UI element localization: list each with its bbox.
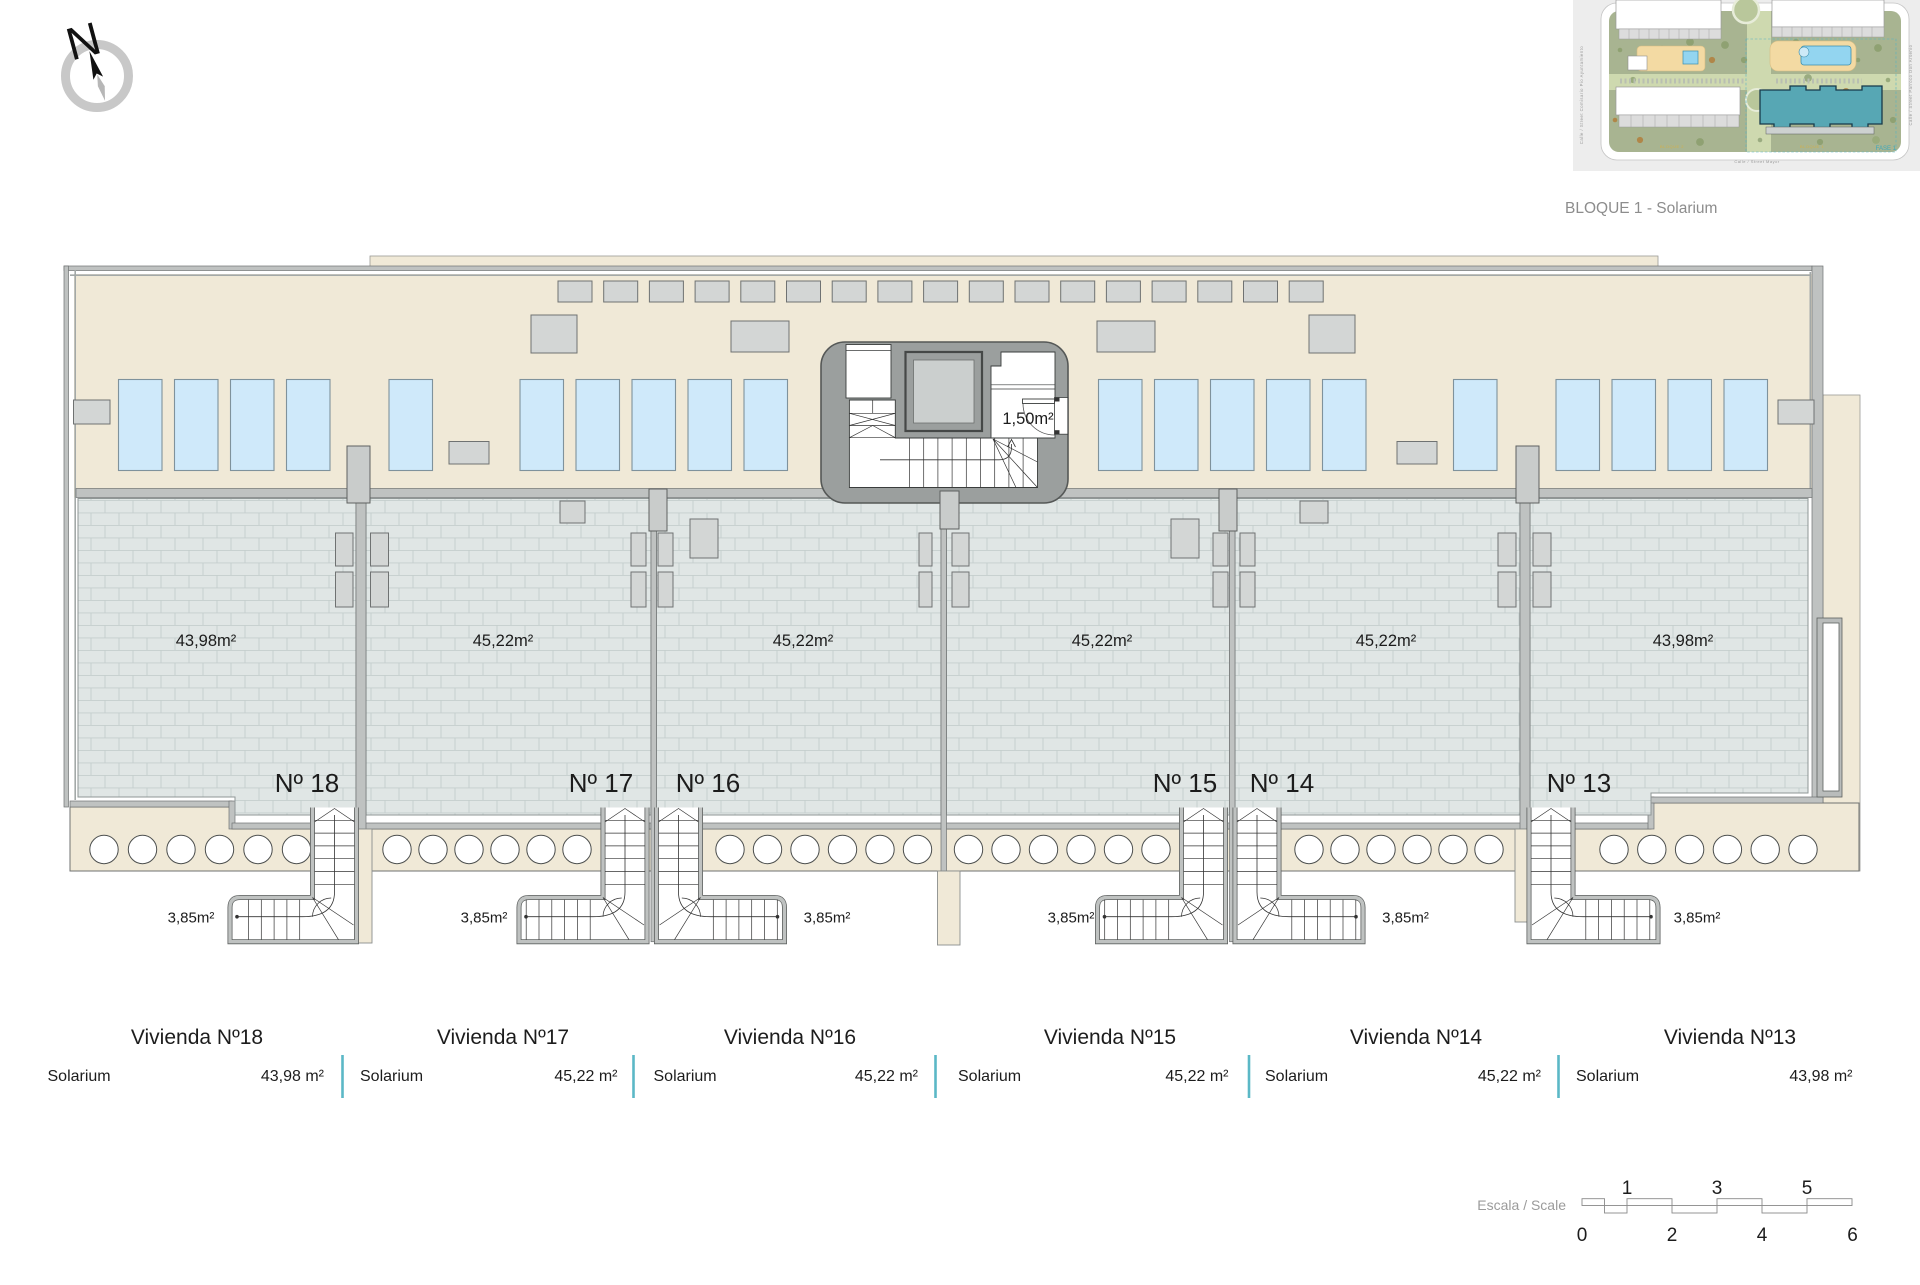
svg-text:BLOQUE 1 - Solarium: BLOQUE 1 - Solarium bbox=[1565, 200, 1717, 217]
svg-text:Nº 16: Nº 16 bbox=[676, 768, 740, 798]
svg-text:Calle / Street Parroco Don Ar: Calle / Street Parroco Don Arsenio bbox=[1908, 44, 1913, 125]
svg-text:Vivienda Nº18: Vivienda Nº18 bbox=[131, 1026, 263, 1049]
svg-text:3,85m²: 3,85m² bbox=[461, 910, 508, 927]
svg-text:45,22 m²: 45,22 m² bbox=[1165, 1068, 1229, 1085]
svg-text:5: 5 bbox=[1802, 1178, 1813, 1199]
svg-text:45,22 m²: 45,22 m² bbox=[1478, 1068, 1542, 1085]
svg-text:Solarium: Solarium bbox=[654, 1068, 717, 1085]
svg-text:3,85m²: 3,85m² bbox=[804, 910, 851, 927]
svg-text:4: 4 bbox=[1757, 1225, 1768, 1246]
svg-text:Calle / Street Mayor: Calle / Street Mayor bbox=[1734, 159, 1780, 164]
svg-text:2: 2 bbox=[1667, 1225, 1678, 1246]
svg-text:45,22m²: 45,22m² bbox=[1356, 632, 1417, 650]
svg-text:45,22 m²: 45,22 m² bbox=[554, 1068, 618, 1085]
svg-text:3,85m²: 3,85m² bbox=[1048, 910, 1095, 927]
svg-text:BLOQUE 2: BLOQUE 2 bbox=[1660, 144, 1684, 149]
svg-text:Escala / Scale: Escala / Scale bbox=[1477, 1197, 1566, 1213]
svg-text:Vivienda Nº16: Vivienda Nº16 bbox=[724, 1026, 856, 1049]
svg-text:3: 3 bbox=[1712, 1178, 1723, 1199]
svg-text:Solarium: Solarium bbox=[48, 1068, 111, 1085]
svg-text:Vivienda Nº17: Vivienda Nº17 bbox=[437, 1026, 569, 1049]
svg-text:3,85m²: 3,85m² bbox=[1674, 910, 1721, 927]
svg-text:3,85m²: 3,85m² bbox=[168, 910, 215, 927]
svg-text:43,98 m²: 43,98 m² bbox=[1789, 1068, 1853, 1085]
svg-text:43,98m²: 43,98m² bbox=[1653, 632, 1714, 650]
svg-text:Vivienda Nº13: Vivienda Nº13 bbox=[1664, 1026, 1796, 1049]
svg-text:45,22m²: 45,22m² bbox=[1072, 632, 1133, 650]
svg-text:FASE 1: FASE 1 bbox=[1876, 146, 1897, 152]
svg-text:1: 1 bbox=[1622, 1178, 1633, 1199]
svg-text:Nº 15: Nº 15 bbox=[1153, 768, 1217, 798]
svg-text:Nº 14: Nº 14 bbox=[1250, 768, 1314, 798]
svg-text:45,22 m²: 45,22 m² bbox=[855, 1068, 919, 1085]
svg-text:Solarium: Solarium bbox=[958, 1068, 1021, 1085]
svg-text:Nº 17: Nº 17 bbox=[569, 768, 633, 798]
svg-text:Solarium: Solarium bbox=[1265, 1068, 1328, 1085]
svg-text:Calle / Street Comisario Pio A: Calle / Street Comisario Pio Ayuntamient… bbox=[1579, 46, 1584, 145]
svg-text:6: 6 bbox=[1847, 1225, 1858, 1246]
svg-text:Vivienda Nº14: Vivienda Nº14 bbox=[1350, 1026, 1483, 1049]
svg-text:Nº 18: Nº 18 bbox=[275, 768, 339, 798]
svg-text:Vivienda Nº15: Vivienda Nº15 bbox=[1044, 1026, 1176, 1049]
svg-text:0: 0 bbox=[1577, 1225, 1588, 1246]
svg-text:45,22m²: 45,22m² bbox=[473, 632, 534, 650]
svg-text:43,98m²: 43,98m² bbox=[176, 632, 237, 650]
svg-text:3,85m²: 3,85m² bbox=[1382, 910, 1429, 927]
svg-text:BLOQUE 1: BLOQUE 1 bbox=[1800, 144, 1824, 149]
svg-text:1,50m²: 1,50m² bbox=[1002, 410, 1054, 428]
svg-text:Solarium: Solarium bbox=[1576, 1068, 1639, 1085]
svg-text:Nº 13: Nº 13 bbox=[1547, 768, 1611, 798]
svg-text:43,98 m²: 43,98 m² bbox=[261, 1068, 325, 1085]
svg-text:Solarium: Solarium bbox=[360, 1068, 423, 1085]
svg-text:45,22m²: 45,22m² bbox=[773, 632, 834, 650]
